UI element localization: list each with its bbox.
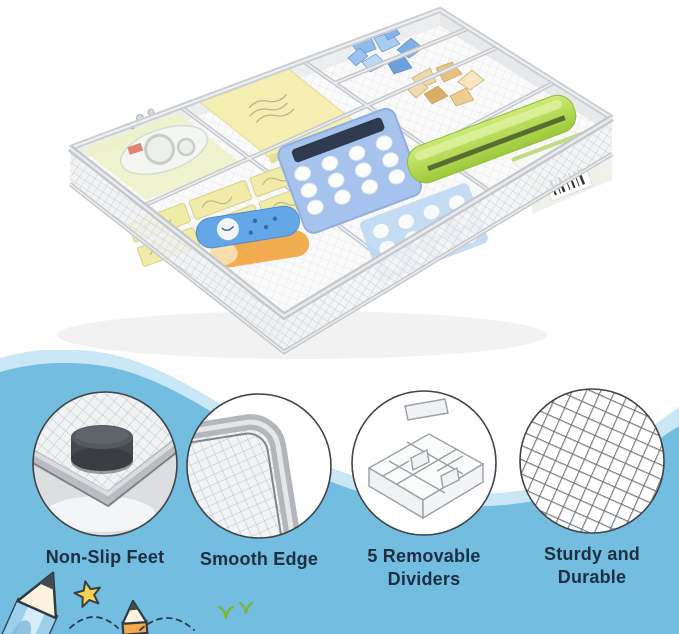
feature-label-line: Durable [544, 566, 640, 589]
star-doodle [73, 579, 104, 608]
feature-label-line: Dividers [367, 568, 480, 591]
feature-non-slip-feet: Non-Slip Feet [20, 389, 190, 569]
feature-removable-dividers: 5 Removable Dividers [339, 388, 509, 591]
feature-label-line: 5 Removable [367, 545, 480, 568]
mesh-drawer-organizer-photo [52, 0, 622, 360]
feature-smooth-edge: Smooth Edge [174, 391, 344, 571]
feature-label: Sturdy and Durable [544, 543, 640, 589]
removable-dividers-icon [349, 388, 499, 538]
blue-pencil-doodle [0, 564, 72, 634]
smooth-edge-icon [184, 391, 334, 541]
pencil-doodles [0, 552, 330, 634]
small-pencil-doodle [121, 600, 150, 634]
product-listing-image: Non-Slip Feet [0, 0, 679, 634]
feature-sturdy-durable: Sturdy and Durable [507, 386, 677, 589]
mesh-texture-icon [517, 386, 667, 536]
feature-label-line: Sturdy and [544, 543, 640, 566]
sprout-doodles [219, 603, 252, 618]
feature-label: 5 Removable Dividers [367, 545, 480, 591]
rubber-foot [71, 425, 133, 474]
non-slip-foot-icon [30, 389, 180, 539]
